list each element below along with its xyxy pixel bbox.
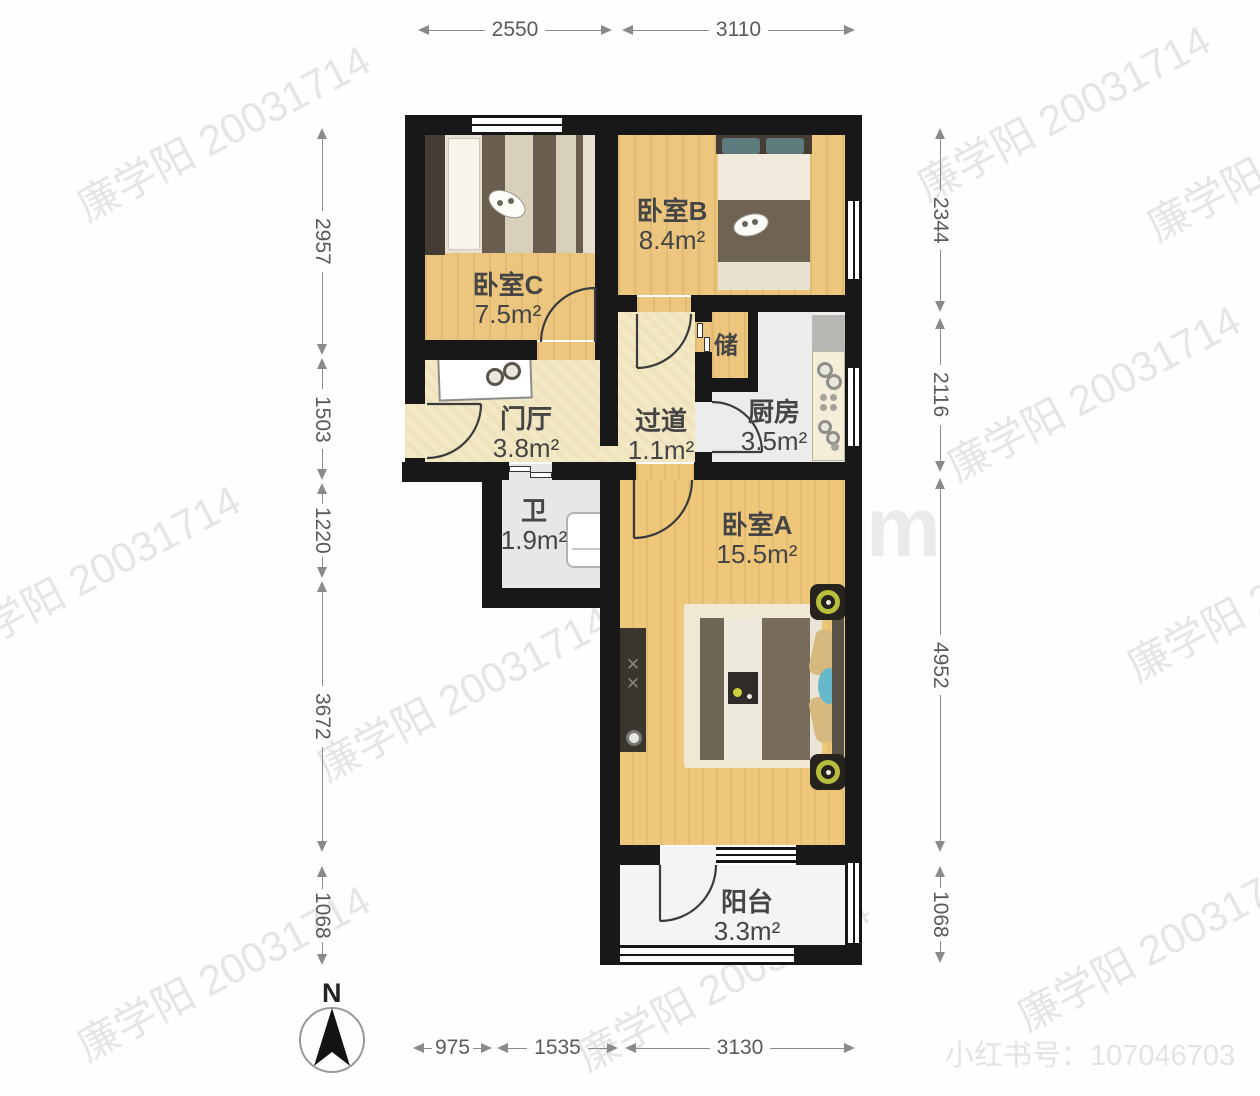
- dimension-right-4: 1068: [928, 866, 952, 963]
- room-label-bedroomB: 卧室B 8.4m²: [637, 197, 708, 255]
- door-arc-bedroomA: [634, 480, 692, 538]
- dimension-value: 2550: [485, 18, 546, 42]
- room-area: 3.8m²: [493, 434, 559, 463]
- dimension-right-1: 2344: [928, 128, 952, 312]
- door-arc-balcony: [660, 865, 716, 921]
- dimension-value: 2957: [310, 211, 334, 272]
- compass-north-label: N: [322, 978, 342, 1009]
- room-label-hall: 门厅 3.8m²: [493, 405, 559, 463]
- dimension-left-1: 2957: [310, 128, 334, 355]
- room-label-corridor: 过道 1.1m²: [628, 407, 694, 465]
- dimension-bottom-1: 975: [413, 1036, 492, 1060]
- dimension-left-3: 1220: [310, 483, 334, 578]
- room-label-balcony: 阳台 3.3m²: [714, 888, 780, 946]
- dimension-value: 1068: [928, 888, 952, 941]
- room-area: 3.3m²: [714, 917, 780, 946]
- compass-needle-icon: [314, 1008, 350, 1066]
- dimension-top-2: 3110: [622, 18, 855, 42]
- room-name: 阳台: [714, 888, 780, 917]
- dimension-value: 975: [432, 1036, 473, 1060]
- room-area: 3.5m²: [741, 427, 807, 456]
- room-label-kitchen: 厨房 3.5m²: [741, 398, 807, 456]
- room-area: 7.5m²: [473, 300, 544, 329]
- room-label-bedroomA: 卧室A 15.5m²: [717, 511, 798, 569]
- room-label-storage: 储: [714, 334, 738, 361]
- dimension-left-4: 3672: [310, 581, 334, 852]
- room-name: 厨房: [741, 398, 807, 427]
- dimension-value: 4952: [928, 635, 952, 696]
- dimension-right-2: 2116: [928, 318, 952, 472]
- dimension-top-1: 2550: [418, 18, 612, 42]
- door-arc-layer: [0, 0, 1260, 1096]
- door-arc-entry: [427, 404, 481, 458]
- dimension-bottom-2: 1535: [497, 1036, 618, 1060]
- dimension-bottom-3: 3130: [625, 1036, 855, 1060]
- dimension-value: 3130: [710, 1036, 771, 1060]
- dimension-left-2: 1503: [310, 358, 334, 480]
- room-name: 过道: [628, 407, 694, 436]
- room-name: 卧室A: [717, 511, 798, 540]
- dimension-value: 2344: [928, 190, 952, 251]
- room-area: 8.4m²: [637, 226, 708, 255]
- room-area: 1.9m²: [501, 526, 567, 555]
- room-label-bath: 卫 1.9m²: [501, 497, 567, 555]
- room-name: 卫: [501, 497, 567, 526]
- room-area: 1.1m²: [628, 436, 694, 465]
- dimension-value: 3110: [709, 18, 768, 42]
- dimension-value: 2116: [928, 365, 952, 424]
- room-area: 15.5m²: [717, 540, 798, 569]
- door-arc-bedroomC: [541, 288, 595, 342]
- room-name: 储: [714, 334, 738, 361]
- dimension-value: 3672: [310, 686, 334, 747]
- dimension-value: 1535: [527, 1036, 588, 1060]
- room-name: 卧室B: [637, 197, 708, 226]
- floorplan-canvas: 廉学阳 20031714 廉学阳 20031714 廉学阳 20031714 廉…: [0, 0, 1260, 1096]
- room-name: 卧室C: [473, 271, 544, 300]
- dimension-right-3: 4952: [928, 478, 952, 852]
- room-label-bedroomC: 卧室C 7.5m²: [473, 271, 544, 329]
- door-arc-bedroomB: [637, 314, 691, 368]
- dimension-left-5: 1068: [310, 866, 334, 965]
- dimension-value: 1068: [310, 889, 334, 942]
- dimension-value: 1220: [310, 504, 334, 557]
- dimension-value: 1503: [310, 389, 334, 450]
- room-name: 门厅: [493, 405, 559, 434]
